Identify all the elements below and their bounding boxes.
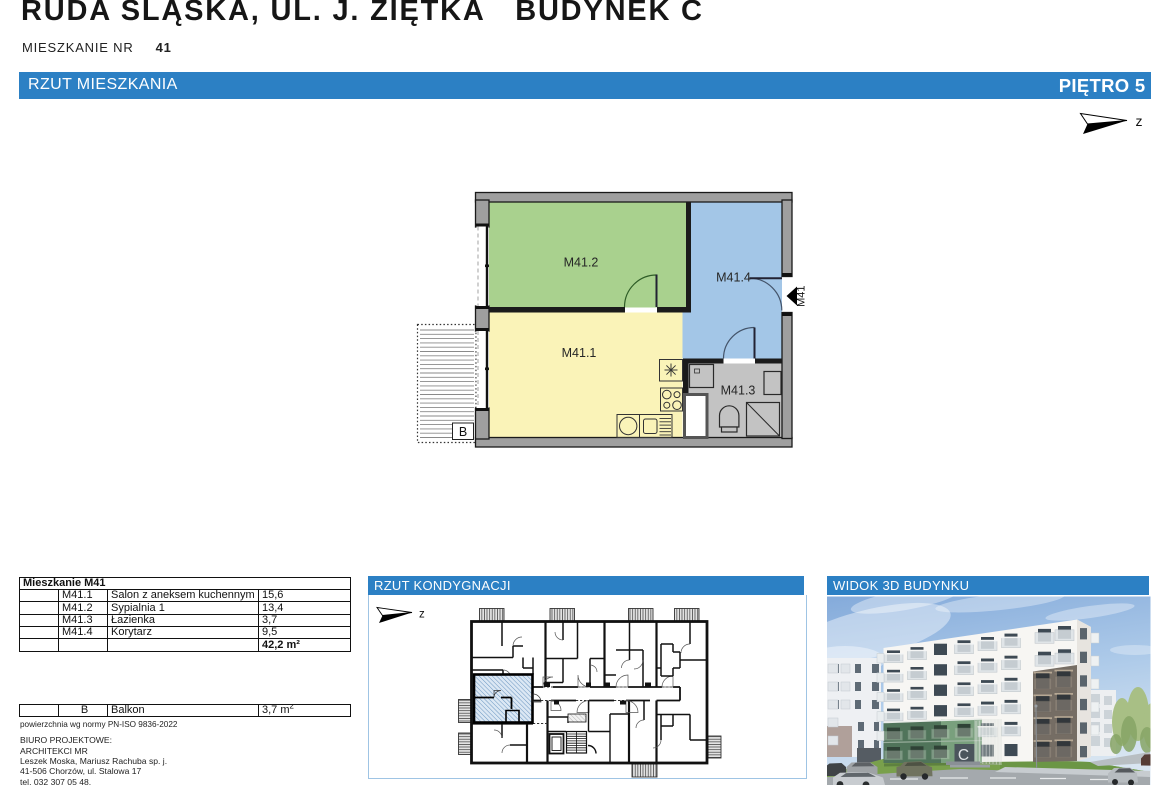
svg-text:B: B	[459, 425, 467, 439]
svg-text:M41.2: M41.2	[564, 256, 599, 270]
svg-text:M41: M41	[796, 285, 808, 306]
svg-text:C: C	[958, 747, 969, 764]
svg-text:z: z	[419, 609, 425, 621]
svg-text:M41.1: M41.1	[562, 346, 597, 360]
svg-text:z: z	[1136, 113, 1143, 129]
svg-text:M41.4: M41.4	[716, 271, 751, 285]
svg-text:M41.3: M41.3	[721, 384, 756, 398]
